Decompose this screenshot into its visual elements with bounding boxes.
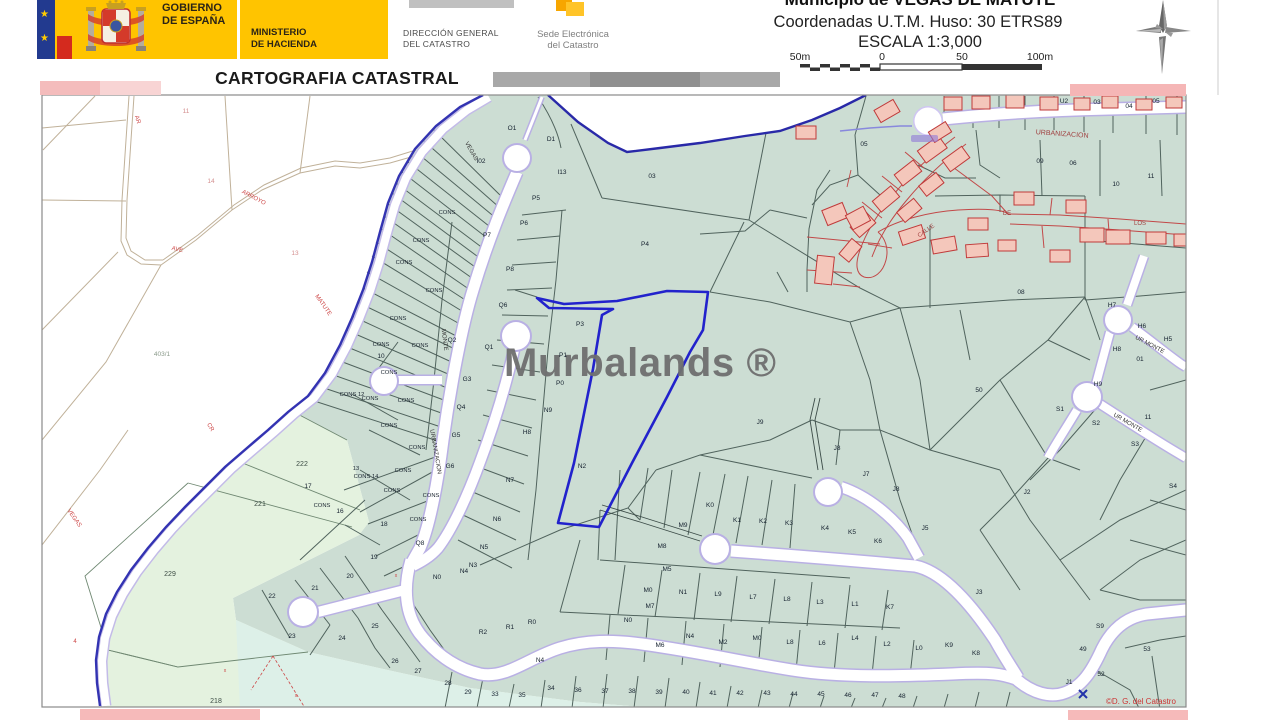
svg-text:H7: H7 bbox=[1108, 302, 1117, 309]
svg-text:P1: P1 bbox=[559, 352, 567, 359]
svg-text:J8: J8 bbox=[834, 445, 841, 452]
svg-text:CARTOGRAFIA CATASTRAL: CARTOGRAFIA CATASTRAL bbox=[215, 68, 459, 88]
svg-text:L1: L1 bbox=[851, 601, 859, 608]
svg-text:42: 42 bbox=[736, 690, 744, 697]
svg-text:218: 218 bbox=[210, 698, 222, 705]
svg-text:P7: P7 bbox=[483, 232, 491, 239]
svg-text:J5: J5 bbox=[922, 525, 929, 532]
svg-text:J2: J2 bbox=[1024, 489, 1031, 496]
svg-text:I13: I13 bbox=[557, 169, 566, 176]
svg-text:N1: N1 bbox=[679, 589, 688, 596]
svg-text:K6: K6 bbox=[874, 538, 882, 545]
svg-text:27: 27 bbox=[414, 668, 422, 675]
svg-text:MINISTERIO: MINISTERIO bbox=[251, 27, 306, 38]
svg-text:Sede Electrónica: Sede Electrónica bbox=[537, 29, 610, 40]
svg-text:J1: J1 bbox=[1066, 679, 1073, 686]
svg-text:20: 20 bbox=[346, 573, 354, 580]
svg-text:S3: S3 bbox=[1131, 441, 1139, 448]
svg-text:43: 43 bbox=[763, 690, 771, 697]
svg-text:26: 26 bbox=[391, 658, 399, 665]
svg-text:100m: 100m bbox=[1027, 51, 1054, 63]
svg-text:J9: J9 bbox=[757, 419, 764, 426]
svg-text:N4: N4 bbox=[460, 568, 469, 575]
svg-text:P4: P4 bbox=[641, 241, 649, 248]
svg-text:CONS 14: CONS 14 bbox=[354, 474, 380, 480]
svg-text:50m: 50m bbox=[790, 51, 811, 63]
svg-text:CONS: CONS bbox=[412, 343, 429, 349]
svg-text:K4: K4 bbox=[821, 525, 829, 532]
svg-text:Murbalands ®: Murbalands ® bbox=[504, 341, 776, 385]
svg-text:Q6: Q6 bbox=[499, 302, 508, 309]
svg-text:48: 48 bbox=[898, 693, 906, 700]
svg-text:222: 222 bbox=[296, 461, 308, 468]
svg-text:CONS: CONS bbox=[381, 370, 398, 376]
svg-text:CONS: CONS bbox=[409, 445, 426, 451]
svg-text:49: 49 bbox=[1079, 646, 1087, 653]
svg-text:01: 01 bbox=[1136, 356, 1144, 363]
svg-text:K3: K3 bbox=[785, 520, 793, 527]
svg-text:CONS: CONS bbox=[381, 423, 398, 429]
svg-text:G3: G3 bbox=[463, 376, 472, 383]
svg-text:16: 16 bbox=[336, 508, 344, 515]
svg-text:03: 03 bbox=[1093, 99, 1101, 106]
svg-text:50: 50 bbox=[975, 387, 983, 394]
svg-text:29: 29 bbox=[464, 689, 472, 696]
svg-text:44: 44 bbox=[790, 691, 798, 698]
svg-text:53: 53 bbox=[1143, 646, 1151, 653]
svg-text:47: 47 bbox=[871, 692, 879, 699]
svg-text:H6: H6 bbox=[1138, 323, 1147, 330]
svg-text:25: 25 bbox=[371, 623, 379, 630]
svg-text:S2: S2 bbox=[1092, 420, 1100, 427]
svg-text:09: 09 bbox=[1036, 158, 1044, 165]
svg-text:CONS: CONS bbox=[413, 238, 430, 244]
svg-text:52: 52 bbox=[1097, 671, 1105, 678]
svg-text:★: ★ bbox=[40, 9, 49, 20]
svg-text:J7: J7 bbox=[863, 471, 870, 478]
svg-text:35: 35 bbox=[518, 692, 526, 699]
svg-text:M8: M8 bbox=[657, 543, 666, 550]
svg-text:K7: K7 bbox=[886, 604, 894, 611]
svg-text:L3: L3 bbox=[816, 599, 824, 606]
svg-text:0: 0 bbox=[879, 51, 885, 63]
svg-text:K1: K1 bbox=[733, 517, 741, 524]
svg-text:L0: L0 bbox=[915, 645, 923, 652]
svg-text:N6: N6 bbox=[493, 516, 502, 523]
svg-text:GOBIERNO: GOBIERNO bbox=[162, 2, 222, 14]
svg-text:G6: G6 bbox=[446, 463, 455, 470]
svg-text:36: 36 bbox=[574, 687, 582, 694]
svg-text:K5: K5 bbox=[848, 529, 856, 536]
svg-text:DE ESPAÑA: DE ESPAÑA bbox=[162, 14, 225, 27]
svg-text:S9: S9 bbox=[1096, 623, 1104, 630]
svg-text:23: 23 bbox=[288, 633, 296, 640]
svg-text:06: 06 bbox=[1069, 160, 1077, 167]
svg-text:M2: M2 bbox=[718, 639, 727, 646]
svg-text:L7: L7 bbox=[749, 594, 757, 601]
svg-text:R1: R1 bbox=[506, 624, 515, 631]
svg-text:33: 33 bbox=[491, 691, 499, 698]
svg-text:D1: D1 bbox=[547, 136, 556, 143]
svg-text:L9: L9 bbox=[714, 591, 722, 598]
svg-text:L6: L6 bbox=[818, 640, 826, 647]
svg-text:10: 10 bbox=[1112, 181, 1120, 188]
svg-text:Q8: Q8 bbox=[416, 540, 425, 547]
svg-text:17: 17 bbox=[304, 483, 312, 490]
svg-text:N5: N5 bbox=[480, 544, 489, 551]
svg-text:CONS: CONS bbox=[426, 288, 443, 294]
svg-text:229: 229 bbox=[164, 571, 176, 578]
svg-text:CONS 12: CONS 12 bbox=[340, 392, 365, 398]
svg-text:K0: K0 bbox=[706, 502, 714, 509]
svg-text:M0: M0 bbox=[643, 587, 652, 594]
svg-text:39: 39 bbox=[655, 689, 663, 696]
svg-text:H9: H9 bbox=[1094, 381, 1103, 388]
svg-text:H5: H5 bbox=[1164, 336, 1173, 343]
svg-text:CONS: CONS bbox=[439, 210, 456, 216]
svg-text:CONS: CONS bbox=[398, 398, 415, 404]
svg-text:13: 13 bbox=[291, 250, 299, 257]
svg-text:M9: M9 bbox=[678, 522, 687, 529]
svg-text:CONS: CONS bbox=[390, 316, 407, 322]
svg-text:N9: N9 bbox=[544, 407, 553, 414]
svg-text:221: 221 bbox=[254, 501, 266, 508]
svg-text:403/1: 403/1 bbox=[154, 351, 171, 358]
svg-text:DIRECCIÓN GENERAL: DIRECCIÓN GENERAL bbox=[403, 28, 499, 38]
svg-text:03: 03 bbox=[648, 173, 656, 180]
svg-text:L8: L8 bbox=[786, 639, 794, 646]
svg-text:19: 19 bbox=[370, 554, 378, 561]
svg-text:N2: N2 bbox=[578, 463, 587, 470]
svg-text:11: 11 bbox=[1148, 173, 1155, 180]
svg-text:CONS: CONS bbox=[410, 517, 427, 523]
svg-text:L2: L2 bbox=[883, 641, 891, 648]
svg-text:del Catastro: del Catastro bbox=[547, 40, 598, 51]
svg-text:04: 04 bbox=[1125, 103, 1133, 110]
svg-text:L4: L4 bbox=[851, 635, 859, 642]
svg-text:M0: M0 bbox=[752, 635, 761, 642]
svg-text:K8: K8 bbox=[972, 650, 980, 657]
svg-text:N7: N7 bbox=[506, 477, 515, 484]
svg-text:24: 24 bbox=[338, 635, 346, 642]
svg-text:P5: P5 bbox=[532, 195, 540, 202]
svg-text:CONS: CONS bbox=[395, 468, 412, 474]
svg-text:45: 45 bbox=[817, 691, 825, 698]
svg-text:M7: M7 bbox=[645, 603, 654, 610]
svg-text:★: ★ bbox=[40, 33, 49, 44]
svg-text:L8: L8 bbox=[783, 596, 791, 603]
svg-text:O1: O1 bbox=[508, 125, 517, 132]
svg-text:DE: DE bbox=[1003, 211, 1011, 217]
svg-text:CONS: CONS bbox=[384, 488, 401, 494]
svg-text:ESCALA 1:3,000: ESCALA 1:3,000 bbox=[858, 33, 982, 51]
svg-text:Q1: Q1 bbox=[485, 344, 494, 351]
svg-text:P6: P6 bbox=[520, 220, 528, 227]
svg-text:CONS: CONS bbox=[423, 493, 440, 499]
svg-text:Municipio de VEGAS DE MATUTE: Municipio de VEGAS DE MATUTE bbox=[785, 0, 1056, 9]
svg-text:37: 37 bbox=[601, 688, 609, 695]
svg-text:P3: P3 bbox=[576, 321, 584, 328]
svg-text:J8: J8 bbox=[893, 486, 900, 493]
svg-text:S1: S1 bbox=[1056, 406, 1064, 413]
svg-text:21: 21 bbox=[311, 585, 319, 592]
svg-text:M5: M5 bbox=[662, 566, 671, 573]
svg-text:P8: P8 bbox=[506, 266, 514, 273]
svg-text:S4: S4 bbox=[1169, 483, 1177, 490]
svg-text:R0: R0 bbox=[528, 619, 537, 626]
svg-text:U2: U2 bbox=[1060, 98, 1069, 105]
svg-text:14: 14 bbox=[207, 178, 215, 185]
svg-text:N4: N4 bbox=[686, 633, 695, 640]
svg-text:13: 13 bbox=[353, 466, 359, 472]
svg-text:05: 05 bbox=[1152, 98, 1160, 105]
svg-text:R2: R2 bbox=[479, 629, 488, 636]
svg-text:LOS: LOS bbox=[1134, 221, 1146, 227]
svg-text:CONS: CONS bbox=[396, 260, 413, 266]
svg-text:11: 11 bbox=[183, 108, 190, 115]
svg-text:K9: K9 bbox=[945, 642, 953, 649]
svg-text:H8: H8 bbox=[1113, 346, 1122, 353]
svg-text:40: 40 bbox=[682, 689, 690, 696]
svg-text:34: 34 bbox=[547, 685, 555, 692]
svg-text:Q2: Q2 bbox=[448, 337, 457, 344]
svg-text:H8: H8 bbox=[523, 429, 532, 436]
svg-text:N4: N4 bbox=[536, 657, 545, 664]
svg-text:46: 46 bbox=[844, 692, 852, 699]
svg-text:N0: N0 bbox=[433, 574, 442, 581]
svg-text:22: 22 bbox=[268, 593, 276, 600]
svg-text:41: 41 bbox=[709, 690, 717, 697]
svg-text:50: 50 bbox=[956, 51, 968, 63]
svg-text:11: 11 bbox=[1145, 414, 1152, 421]
svg-text:P0: P0 bbox=[556, 380, 564, 387]
svg-text:©D. G. del Catastro: ©D. G. del Catastro bbox=[1106, 697, 1176, 706]
svg-text:Coordenadas U.T.M. Huso: 30 ET: Coordenadas U.T.M. Huso: 30 ETRS89 bbox=[774, 13, 1063, 31]
svg-text:DE HACIENDA: DE HACIENDA bbox=[251, 39, 317, 50]
svg-text:38: 38 bbox=[628, 688, 636, 695]
svg-text:10: 10 bbox=[377, 353, 385, 360]
svg-text:N3: N3 bbox=[469, 562, 478, 569]
svg-text:Q4: Q4 bbox=[457, 404, 466, 411]
svg-text:N0: N0 bbox=[624, 617, 633, 624]
svg-text:CONS: CONS bbox=[314, 503, 331, 509]
svg-text:18: 18 bbox=[380, 521, 388, 528]
svg-text:CONS: CONS bbox=[373, 342, 390, 348]
svg-text:05: 05 bbox=[860, 141, 868, 148]
svg-text:DEL CATASTRO: DEL CATASTRO bbox=[403, 39, 470, 49]
svg-text:08: 08 bbox=[1017, 289, 1025, 296]
svg-text:G5: G5 bbox=[452, 432, 461, 439]
svg-text:M6: M6 bbox=[655, 642, 664, 649]
svg-text:K2: K2 bbox=[759, 518, 767, 525]
svg-text:28: 28 bbox=[444, 680, 452, 687]
svg-text:J3: J3 bbox=[976, 589, 983, 596]
